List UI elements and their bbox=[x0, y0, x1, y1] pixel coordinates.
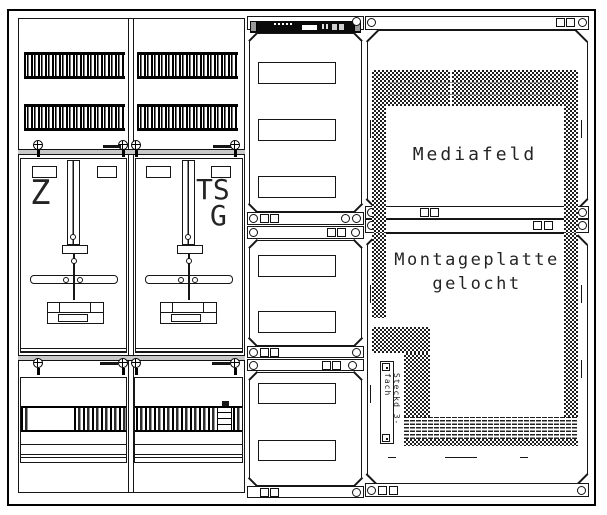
fastener-eye bbox=[178, 277, 184, 283]
fastener-screw bbox=[578, 18, 587, 27]
rail-foot bbox=[177, 245, 203, 254]
cover-clip bbox=[270, 214, 279, 223]
field-rail bbox=[365, 206, 589, 219]
fastener-screw bbox=[367, 18, 376, 27]
fastener-screw bbox=[352, 488, 361, 497]
tariff-field-label-line2: G bbox=[210, 202, 227, 230]
rail-mark bbox=[213, 145, 231, 148]
cover-clip bbox=[420, 208, 429, 217]
fastener-eye bbox=[63, 277, 69, 283]
perforated-plate-step bbox=[372, 327, 430, 353]
fastener-eye bbox=[77, 277, 83, 283]
rail-mark bbox=[103, 145, 121, 148]
plate-row-line bbox=[372, 82, 578, 83]
cover-clip bbox=[337, 228, 346, 237]
fastener-screw bbox=[367, 486, 376, 495]
module-slot bbox=[258, 440, 336, 461]
bar-dot bbox=[274, 23, 276, 25]
perforated-plate-bottom-edge bbox=[404, 439, 578, 446]
ventilation-grille bbox=[137, 52, 238, 79]
ventilation-grille bbox=[24, 52, 125, 79]
field-rail bbox=[365, 483, 589, 497]
breaker-strip bbox=[233, 408, 241, 430]
panel-window bbox=[97, 166, 117, 178]
bar-dot bbox=[286, 23, 288, 25]
cover-clip bbox=[260, 214, 269, 223]
ventilation-grille bbox=[137, 104, 238, 131]
rail-screw-hole bbox=[185, 234, 191, 240]
edge-tick bbox=[370, 120, 371, 138]
perforated-plate-column bbox=[404, 353, 430, 420]
mounting-plate-cover bbox=[367, 233, 588, 486]
fastener-eye bbox=[192, 277, 198, 283]
fastener-screw bbox=[249, 214, 258, 223]
terminal-block-line bbox=[172, 303, 173, 312]
fastener-knob bbox=[186, 258, 192, 264]
cover-clip bbox=[270, 488, 279, 497]
din-rail-row bbox=[135, 406, 242, 432]
cover-clip bbox=[556, 18, 565, 27]
panel-inner-line bbox=[135, 444, 242, 445]
fastener-screw bbox=[578, 208, 587, 217]
bar-port bbox=[332, 24, 337, 30]
rail-mark bbox=[100, 362, 118, 365]
cover-clip bbox=[389, 486, 398, 495]
device-tab bbox=[222, 401, 229, 406]
fastener-screw bbox=[249, 228, 258, 237]
module-slot bbox=[258, 255, 336, 277]
meter-rail bbox=[67, 160, 80, 245]
fastener-screw bbox=[578, 221, 587, 230]
bar-dot bbox=[290, 23, 292, 25]
cabinet-layout-drawing: Z TS G bbox=[0, 0, 607, 515]
fastener-screw bbox=[348, 361, 357, 370]
media-field-label: Mediafeld bbox=[386, 144, 564, 165]
fastener-screw bbox=[249, 361, 258, 370]
module-slot bbox=[258, 383, 336, 404]
fastener-bar bbox=[145, 275, 233, 284]
cover-clip bbox=[327, 228, 336, 237]
panel-cover-edge bbox=[21, 454, 126, 458]
terminal-block-line bbox=[59, 303, 60, 312]
cover-clip bbox=[332, 361, 341, 370]
edge-tick bbox=[581, 120, 582, 138]
terminal-block-line bbox=[48, 312, 103, 313]
cover-clip bbox=[260, 348, 269, 357]
module-slot bbox=[258, 311, 336, 333]
bar-dot bbox=[278, 23, 280, 25]
rail-foot bbox=[62, 245, 88, 254]
fastener-screw bbox=[352, 214, 361, 223]
cover-clip bbox=[270, 348, 279, 357]
edge-tick bbox=[445, 457, 477, 458]
plate-row-line bbox=[372, 94, 578, 95]
screw-icon bbox=[131, 140, 141, 150]
cover-clip bbox=[544, 221, 553, 230]
fastener-screw bbox=[249, 348, 258, 357]
media-field-cover bbox=[367, 30, 588, 211]
screw-icon bbox=[131, 358, 141, 368]
perforated-plate-column bbox=[372, 233, 386, 318]
screw-icon bbox=[230, 140, 240, 150]
field-rail bbox=[365, 219, 589, 233]
screw-icon bbox=[33, 358, 43, 368]
fastener-screw bbox=[352, 348, 361, 357]
panel-bottom-edge bbox=[135, 348, 243, 352]
cover-clip bbox=[533, 221, 542, 230]
terminal-block-inner bbox=[58, 314, 88, 322]
mounting-plate-label-line2: gelocht bbox=[386, 274, 568, 294]
socket-strip-label: Steckd 3-fach bbox=[383, 373, 401, 433]
mounting-rail bbox=[18, 149, 245, 155]
fastener-screw bbox=[577, 486, 586, 495]
edge-tick bbox=[370, 385, 371, 403]
multimedia-bar bbox=[250, 21, 361, 33]
fastener-screw bbox=[341, 214, 350, 223]
panel-bottom-edge bbox=[20, 348, 127, 352]
edge-tick bbox=[581, 360, 582, 378]
screw-icon bbox=[118, 358, 128, 368]
breaker-strip bbox=[136, 408, 216, 430]
socket-strip: Steckd 3-fach bbox=[380, 361, 394, 444]
fastener-knob bbox=[71, 258, 77, 264]
bar-mark bbox=[326, 24, 328, 29]
socket-strip-cap bbox=[382, 434, 390, 442]
bar-dot bbox=[282, 23, 284, 25]
perforated-plate-column bbox=[564, 70, 578, 211]
ventilation-grille bbox=[24, 104, 125, 131]
edge-tick bbox=[581, 285, 582, 303]
cover-clip bbox=[322, 361, 331, 370]
screw-icon bbox=[33, 140, 43, 150]
edge-tick bbox=[520, 457, 528, 458]
perforated-plate-band bbox=[372, 70, 578, 106]
terminal-block-line bbox=[161, 312, 216, 313]
module-slot bbox=[258, 62, 336, 84]
terminal-block-line bbox=[203, 303, 204, 312]
breaker-strip bbox=[21, 408, 30, 430]
fastener-bar bbox=[30, 275, 118, 284]
meter-rail bbox=[182, 160, 195, 245]
perforated-plate-bottom-band bbox=[404, 417, 578, 439]
field-rail bbox=[247, 226, 364, 239]
bar-port bbox=[339, 24, 344, 30]
plate-pass-through bbox=[372, 206, 386, 233]
rail-mark bbox=[212, 362, 230, 365]
edge-tick bbox=[370, 285, 371, 303]
bar-end-cap bbox=[251, 22, 257, 31]
module-slot bbox=[258, 119, 336, 141]
cover-clip bbox=[260, 488, 269, 497]
mounting-plate-label-line1: Montageplatte bbox=[386, 250, 568, 270]
plate-pass-through bbox=[564, 206, 578, 233]
edge-tick bbox=[388, 457, 396, 458]
rcd-device bbox=[217, 408, 232, 430]
screw-icon bbox=[230, 358, 240, 368]
fastener-screw bbox=[351, 228, 360, 237]
module-slot bbox=[258, 176, 336, 198]
panel-window bbox=[146, 166, 171, 178]
cover-clip bbox=[430, 208, 439, 217]
bar-window bbox=[302, 25, 317, 30]
socket-strip-cap bbox=[382, 363, 390, 371]
panel-cover-edge bbox=[135, 454, 242, 458]
fastener-screw bbox=[352, 17, 361, 26]
cover-clip bbox=[566, 18, 575, 27]
perforated-plate-column bbox=[372, 70, 386, 211]
rail-screw-hole bbox=[70, 234, 76, 240]
field-rail bbox=[247, 359, 364, 371]
plate-seam bbox=[450, 70, 452, 106]
terminal-block-line bbox=[90, 303, 91, 312]
meter-field-label: Z bbox=[30, 176, 50, 210]
din-rail-row bbox=[21, 406, 126, 432]
terminal-block-inner bbox=[171, 314, 201, 322]
bar-mark bbox=[322, 24, 324, 29]
cover-clip bbox=[378, 486, 387, 495]
panel-inner-line bbox=[21, 444, 126, 445]
breaker-strip bbox=[74, 408, 126, 430]
